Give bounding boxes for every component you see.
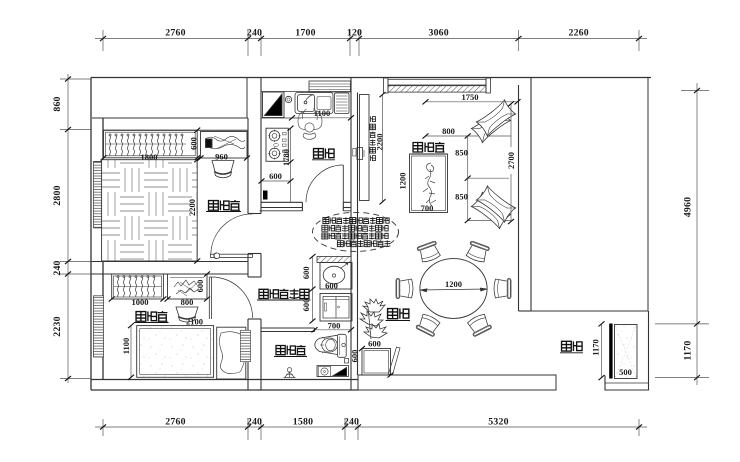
svg-text:1100: 1100 bbox=[121, 338, 131, 355]
svg-text:2760: 2760 bbox=[165, 28, 185, 39]
svg-text:800: 800 bbox=[181, 297, 194, 307]
svg-text:600: 600 bbox=[189, 137, 199, 150]
svg-text:1100: 1100 bbox=[314, 108, 331, 118]
svg-text:700: 700 bbox=[328, 321, 341, 331]
svg-text:2800: 2800 bbox=[52, 185, 63, 205]
svg-text:1000: 1000 bbox=[132, 297, 149, 307]
svg-text:1700: 1700 bbox=[295, 28, 315, 39]
svg-text:600: 600 bbox=[195, 280, 205, 293]
svg-text:240: 240 bbox=[344, 417, 359, 428]
svg-text:1170: 1170 bbox=[591, 339, 601, 356]
svg-text:600: 600 bbox=[325, 280, 338, 290]
svg-text:240: 240 bbox=[52, 260, 63, 275]
svg-text:850: 850 bbox=[455, 192, 468, 202]
svg-text:1200: 1200 bbox=[445, 279, 462, 289]
svg-text:1750: 1750 bbox=[462, 92, 479, 102]
svg-text:500: 500 bbox=[619, 367, 632, 377]
svg-text:600: 600 bbox=[350, 350, 360, 363]
svg-text:2700: 2700 bbox=[506, 152, 516, 169]
svg-text:2760: 2760 bbox=[165, 417, 185, 428]
svg-text:600: 600 bbox=[301, 266, 311, 279]
svg-text:1580: 1580 bbox=[293, 417, 313, 428]
svg-text:2200: 2200 bbox=[375, 134, 385, 151]
svg-text:240: 240 bbox=[247, 417, 262, 428]
svg-text:1170: 1170 bbox=[683, 341, 694, 361]
svg-text:1200: 1200 bbox=[398, 173, 408, 190]
svg-text:600: 600 bbox=[269, 171, 282, 181]
svg-text:2260: 2260 bbox=[568, 28, 588, 39]
svg-text:4960: 4960 bbox=[683, 197, 694, 217]
svg-text:1780: 1780 bbox=[281, 149, 291, 166]
svg-text:700: 700 bbox=[421, 203, 434, 213]
svg-text:120: 120 bbox=[347, 28, 362, 39]
svg-text:600: 600 bbox=[368, 339, 381, 349]
svg-text:800: 800 bbox=[442, 126, 455, 136]
svg-text:3060: 3060 bbox=[428, 28, 448, 39]
svg-text:240: 240 bbox=[247, 28, 262, 39]
svg-text:2100: 2100 bbox=[186, 317, 203, 327]
svg-text:850: 850 bbox=[455, 148, 468, 158]
svg-text:5320: 5320 bbox=[488, 417, 508, 428]
svg-text:860: 860 bbox=[52, 96, 63, 111]
svg-text:960: 960 bbox=[215, 152, 228, 162]
svg-text:2230: 2230 bbox=[52, 316, 63, 336]
svg-text:2200: 2200 bbox=[187, 199, 197, 216]
svg-text:600: 600 bbox=[301, 299, 311, 312]
